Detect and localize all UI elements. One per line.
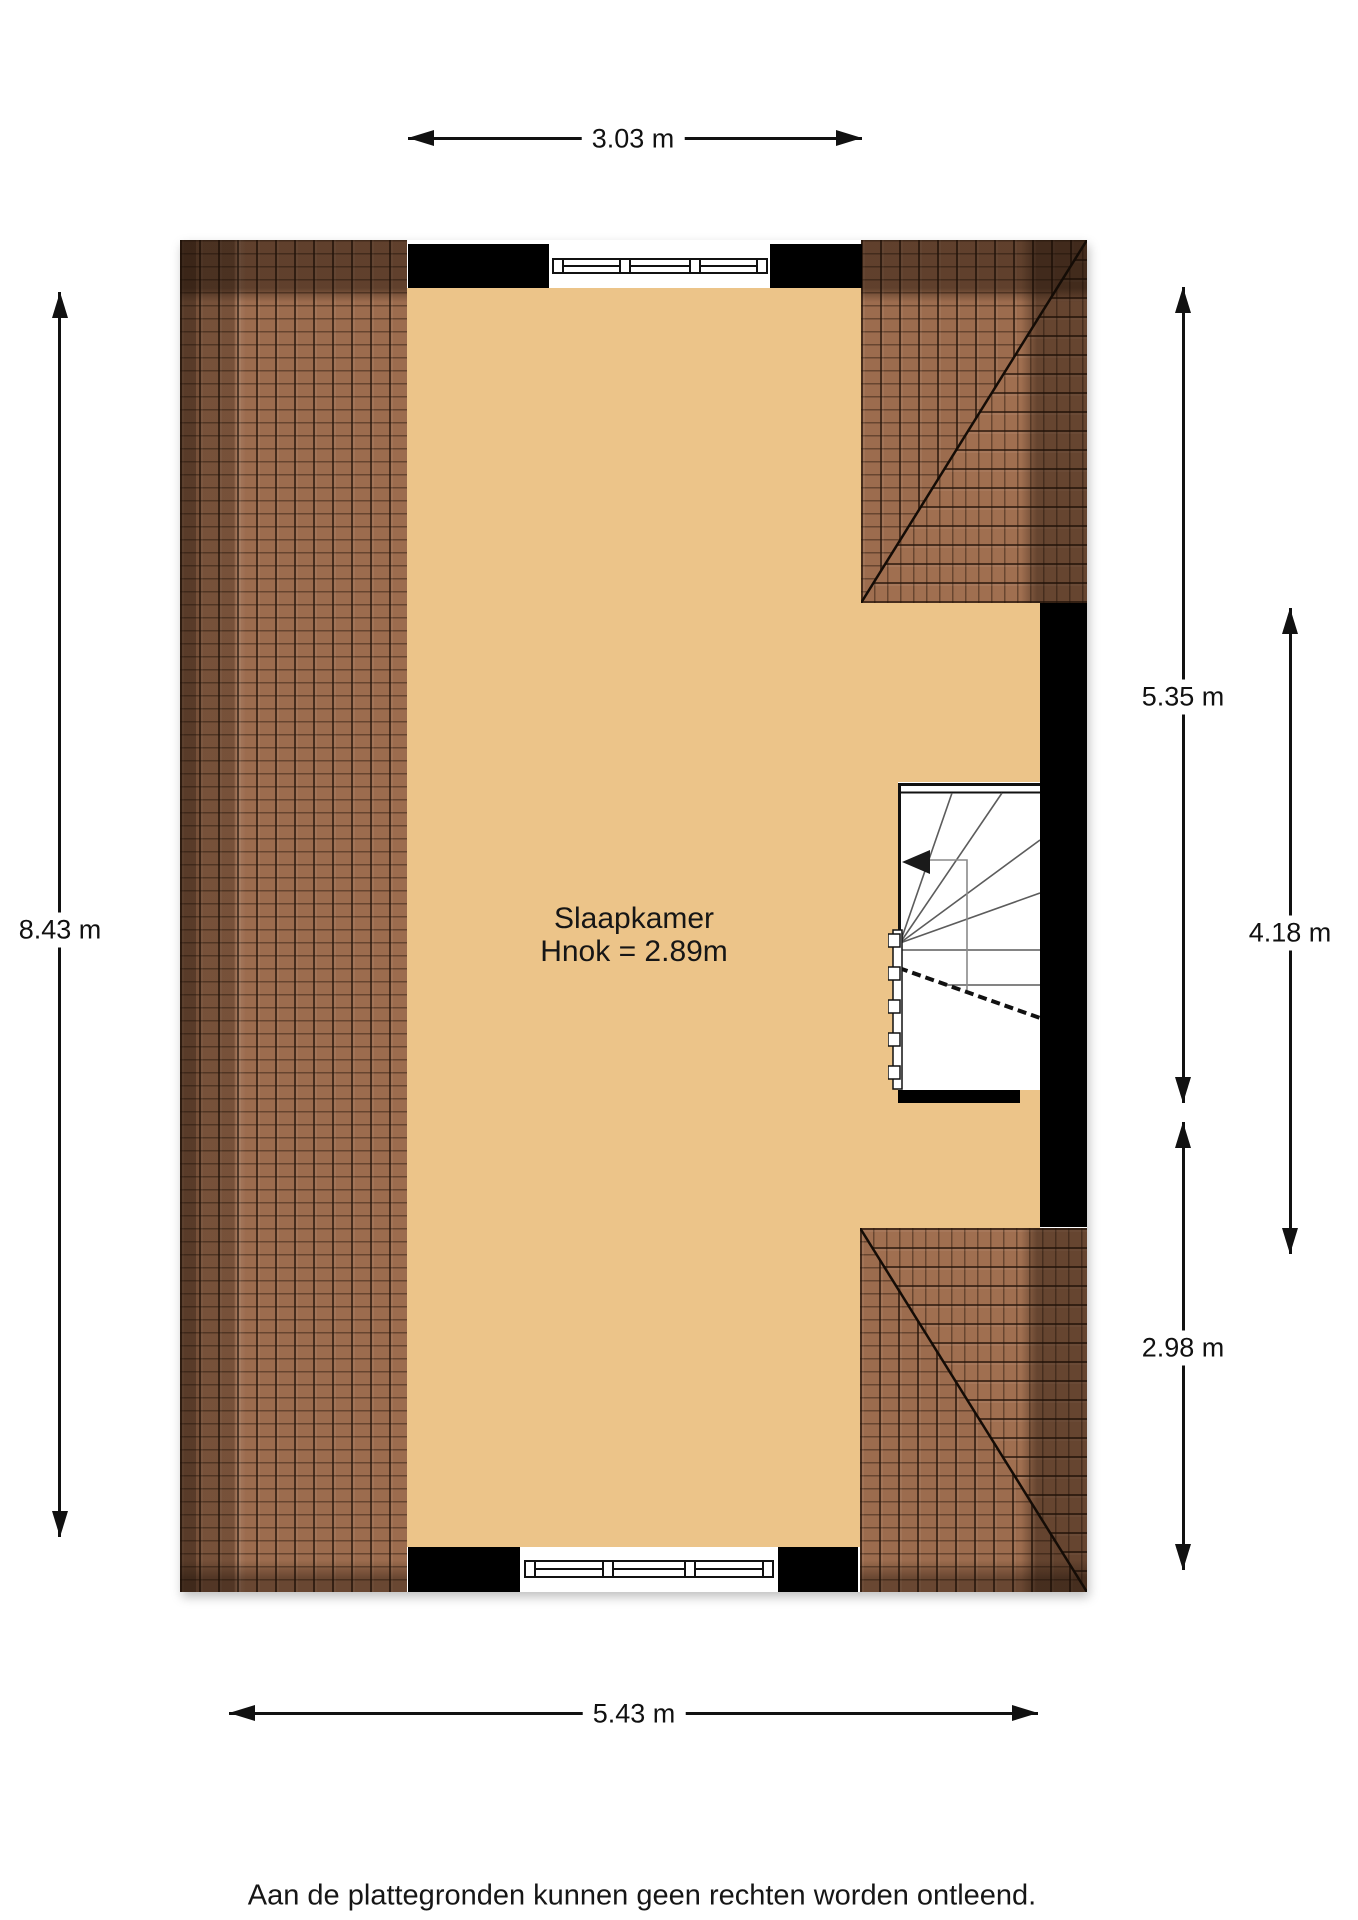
staircase bbox=[888, 782, 1040, 1103]
footer-disclaimer: Aan de plattegronden kunnen geen rechten… bbox=[248, 1880, 1036, 1913]
floorplan-page: Slaapkamer Hnok = 2.89m 3.03 m 8.43 m 5.… bbox=[0, 0, 1358, 1920]
wall-right bbox=[1040, 603, 1087, 1227]
stair-toothed-edge bbox=[888, 930, 902, 1089]
arrowhead-down-icon bbox=[1175, 1077, 1191, 1103]
roof-hip-line bbox=[861, 240, 1087, 603]
wall-top-right bbox=[770, 244, 862, 288]
window-bottom bbox=[520, 1547, 778, 1592]
window-divider bbox=[689, 258, 701, 274]
dim-label-top: 3.03 m bbox=[582, 122, 685, 157]
dim-label-bottom: 5.43 m bbox=[583, 1697, 686, 1732]
window-frame-cap bbox=[762, 1560, 774, 1578]
window-divider bbox=[602, 1560, 614, 1578]
wall-bottom-right bbox=[778, 1547, 858, 1592]
roof-strip-left bbox=[180, 240, 407, 1592]
window-glyph bbox=[524, 1560, 774, 1578]
room-height-note: Hnok = 2.89m bbox=[540, 935, 728, 968]
roof-corner-top-right bbox=[861, 240, 1087, 603]
window-divider bbox=[619, 258, 631, 274]
window-divider bbox=[684, 1560, 696, 1578]
wall-under-stairs bbox=[898, 1090, 1020, 1103]
arrowhead-right-icon bbox=[836, 130, 862, 146]
arrowhead-right-icon bbox=[1012, 1705, 1038, 1721]
wall-top-left bbox=[408, 244, 549, 288]
window-frame-cap bbox=[524, 1560, 536, 1578]
arrowhead-up-icon bbox=[52, 292, 68, 318]
roof-hip-line bbox=[860, 1228, 1087, 1592]
arrowhead-down-icon bbox=[1175, 1544, 1191, 1570]
window-frame-cap bbox=[552, 258, 564, 274]
dim-label-right-middle: 4.18 m bbox=[1239, 916, 1342, 951]
arrowhead-up-icon bbox=[1282, 608, 1298, 634]
wall-bottom-left bbox=[408, 1547, 520, 1592]
window-frame-cap bbox=[756, 258, 768, 274]
dim-label-right-full: 5.35 m bbox=[1132, 680, 1235, 715]
arrowhead-down-icon bbox=[52, 1511, 68, 1537]
dim-label-right-lower: 2.98 m bbox=[1132, 1331, 1235, 1366]
arrowhead-left-icon bbox=[408, 130, 434, 146]
window-top bbox=[549, 244, 770, 288]
room-label: Slaapkamer Hnok = 2.89m bbox=[540, 902, 728, 968]
roof-corner-bottom-right bbox=[860, 1228, 1087, 1592]
arrowhead-down-icon bbox=[1282, 1228, 1298, 1254]
arrowhead-up-icon bbox=[1175, 1122, 1191, 1148]
arrowhead-up-icon bbox=[1175, 287, 1191, 313]
roof-shading bbox=[180, 240, 407, 1592]
window-glyph bbox=[552, 258, 768, 274]
dim-label-left: 8.43 m bbox=[9, 913, 112, 948]
arrowhead-left-icon bbox=[229, 1705, 255, 1721]
room-name: Slaapkamer bbox=[540, 902, 728, 935]
